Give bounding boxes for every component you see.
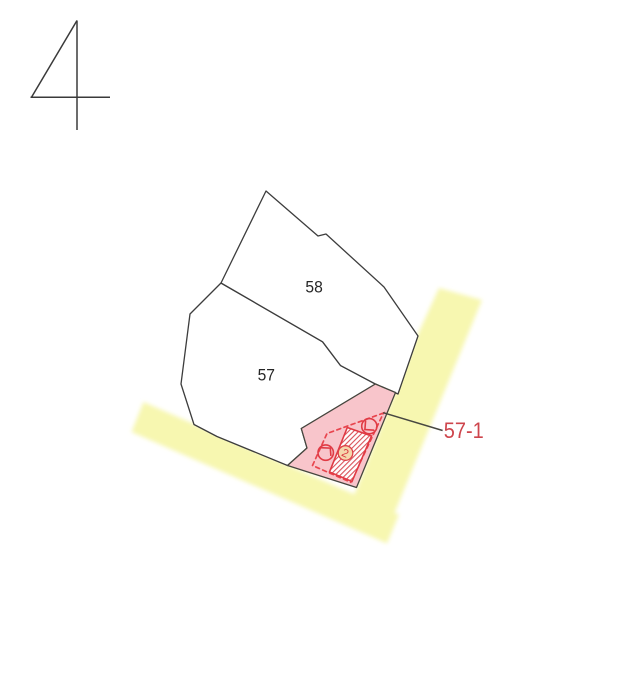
svg-text:57-1: 57-1 <box>444 418 484 443</box>
svg-text:58: 58 <box>305 278 322 296</box>
svg-text:57: 57 <box>258 367 275 385</box>
